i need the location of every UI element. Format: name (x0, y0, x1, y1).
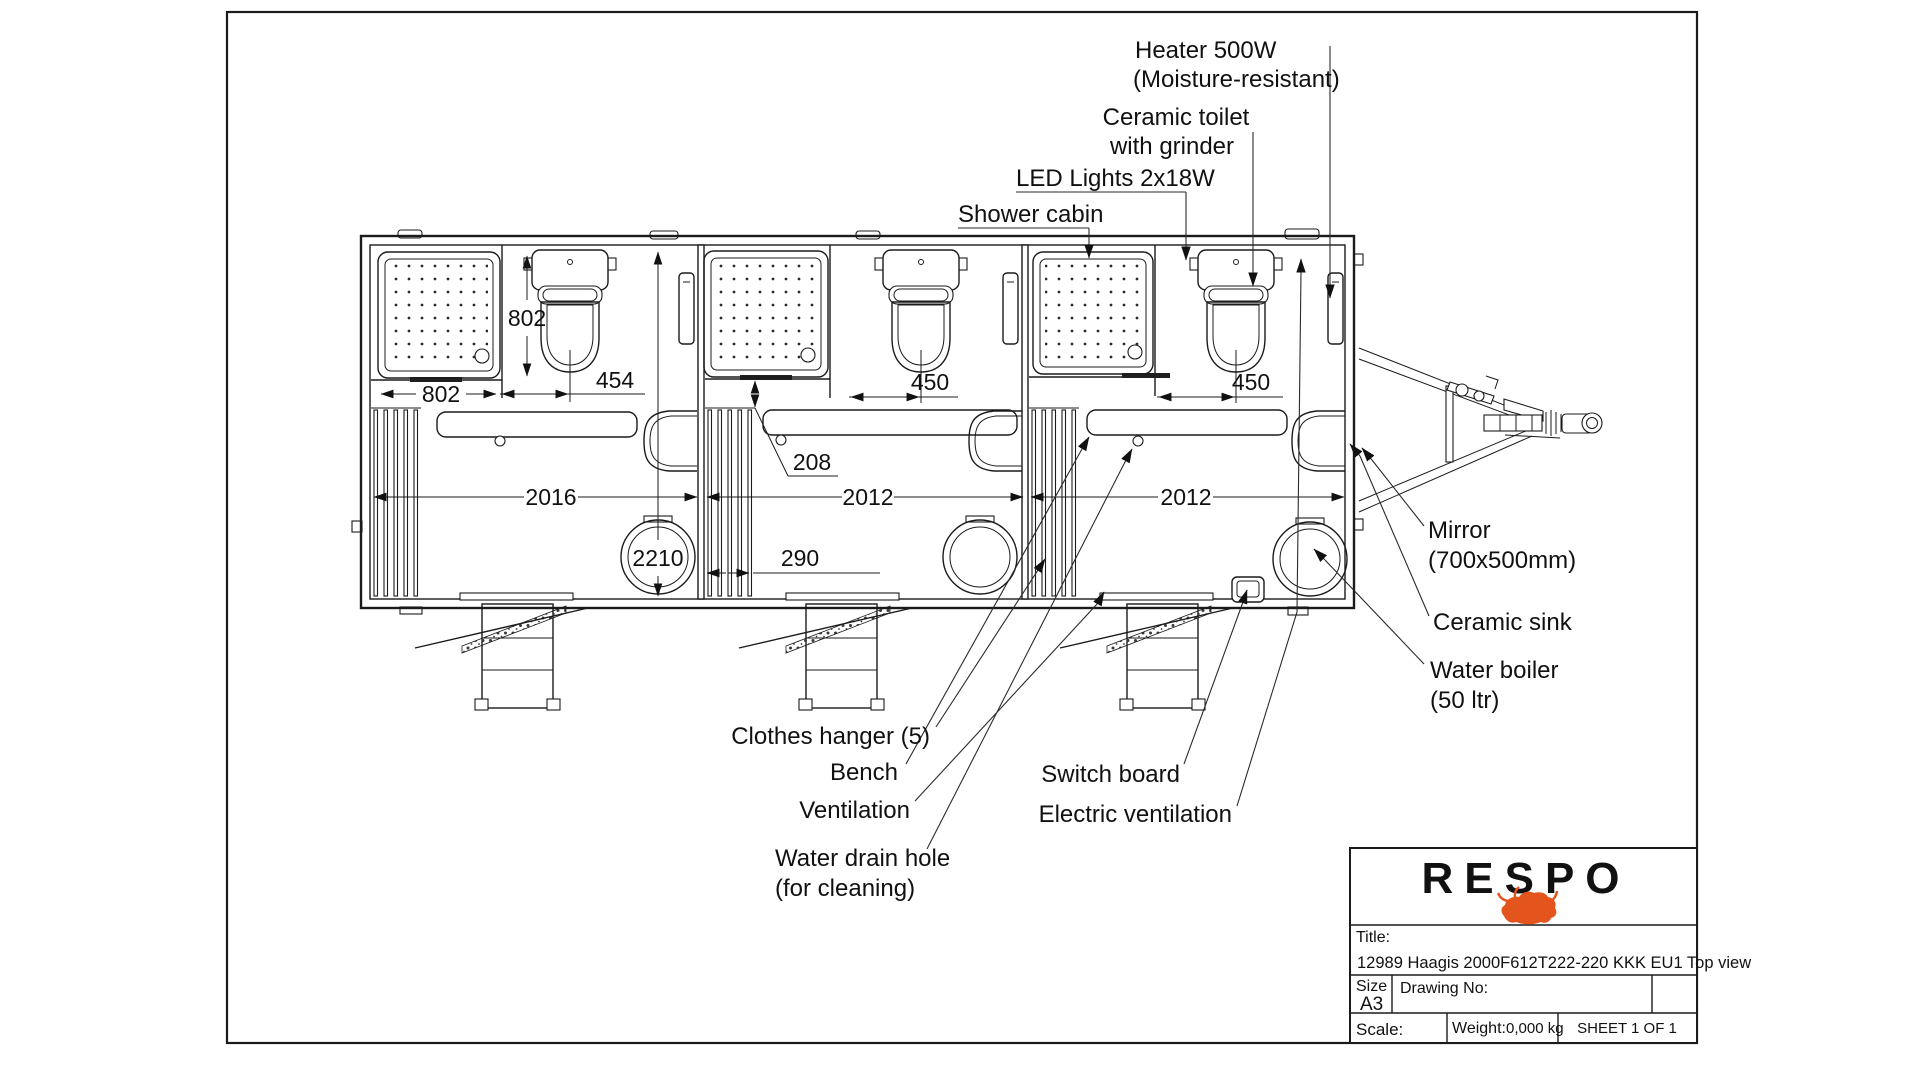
door-threshold-1 (460, 593, 573, 600)
shower-tray-2 (704, 251, 828, 377)
heater-2 (1003, 273, 1018, 344)
wall-tab-right-1 (1354, 254, 1363, 265)
dim-text-toilet-offset-2: 450 (911, 369, 949, 395)
label-water-boiler-line2: (50 ltr) (1430, 687, 1499, 714)
shower-tray-3 (1033, 252, 1153, 374)
label-led-lights: LED Lights 2x18W (1016, 165, 1215, 192)
dim-text-room2-length: 2012 (842, 484, 893, 510)
dim-text-room1-length: 2016 (525, 484, 576, 510)
electric-vent-unit (1285, 229, 1319, 239)
switch-board (1232, 577, 1264, 602)
label-electric-ventilation: Electric ventilation (1039, 801, 1232, 828)
wall-tab-right-2 (1354, 519, 1363, 530)
dim-text-tray-width: 802 (422, 381, 460, 407)
label-mirror-line1: Mirror (1428, 517, 1491, 544)
dim-text-toilet-offset-3: 450 (1232, 369, 1270, 395)
size-label: Size (1356, 978, 1387, 995)
label-bench: Bench (830, 759, 898, 786)
dim-text-room3-length: 2012 (1160, 484, 1211, 510)
label-ventilation: Ventilation (799, 797, 910, 824)
drain-hole-2 (776, 435, 786, 445)
title-value: 12989 Haagis 2000F612T222-220 KKK EU1 To… (1357, 954, 1751, 972)
label-switch-board: Switch board (1041, 761, 1180, 788)
dim-text-tray-bench-gap: 208 (793, 449, 831, 475)
dim-text-interior-width: 2210 (632, 545, 683, 571)
label-clothes-hanger: Clothes hanger (5) (731, 723, 930, 750)
label-water-drain-line2: (for cleaning) (775, 875, 915, 902)
title-label: Title: (1356, 929, 1390, 946)
dim-text-tray-depth: 802 (508, 305, 546, 331)
label-shower-cabin: Shower cabin (958, 201, 1103, 228)
title-block: RESPO Title: 12989 Haagis 2000F612T222-2… (1350, 848, 1751, 1043)
scale-label: Scale: (1356, 1020, 1403, 1039)
sheet-label: SHEET 1 OF 1 (1577, 1020, 1677, 1037)
heater-1 (679, 273, 694, 344)
partition-wall-2 (1022, 245, 1028, 599)
weight-value: 0,000 kg (1506, 1020, 1564, 1037)
door-threshold-2 (786, 593, 899, 600)
dim-text-toilet-offset-1: 454 (596, 367, 635, 393)
label-mirror-line2: (700x500mm) (1428, 547, 1576, 574)
dim-text-hanger-width: 290 (781, 545, 819, 571)
size-value: A3 (1360, 994, 1383, 1015)
partition-wall-1 (698, 245, 704, 599)
label-water-boiler-line1: Water boiler (1430, 657, 1558, 684)
drain-hole-1 (495, 436, 505, 446)
label-ceramic-toilet-line1: Ceramic toilet (1103, 104, 1250, 131)
drain-hole-3 (1133, 436, 1143, 446)
door-threshold-3 (1100, 593, 1213, 600)
label-ceramic-toilet-line2: with grinder (1109, 133, 1234, 160)
label-ceramic-sink: Ceramic sink (1433, 609, 1573, 636)
label-heater-line1: Heater 500W (1135, 37, 1277, 64)
label-water-drain-line1: Water drain hole (775, 845, 950, 872)
weight-label: Weight: (1452, 1020, 1506, 1037)
hitch-coupler (1562, 413, 1602, 433)
label-heater-line2: (Moisture-resistant) (1133, 66, 1340, 93)
shower-tray-1 (378, 252, 500, 378)
drawing-no-label: Drawing No: (1400, 980, 1488, 997)
technical-drawing-canvas: 802 802 454 450 450 (0, 0, 1920, 1080)
